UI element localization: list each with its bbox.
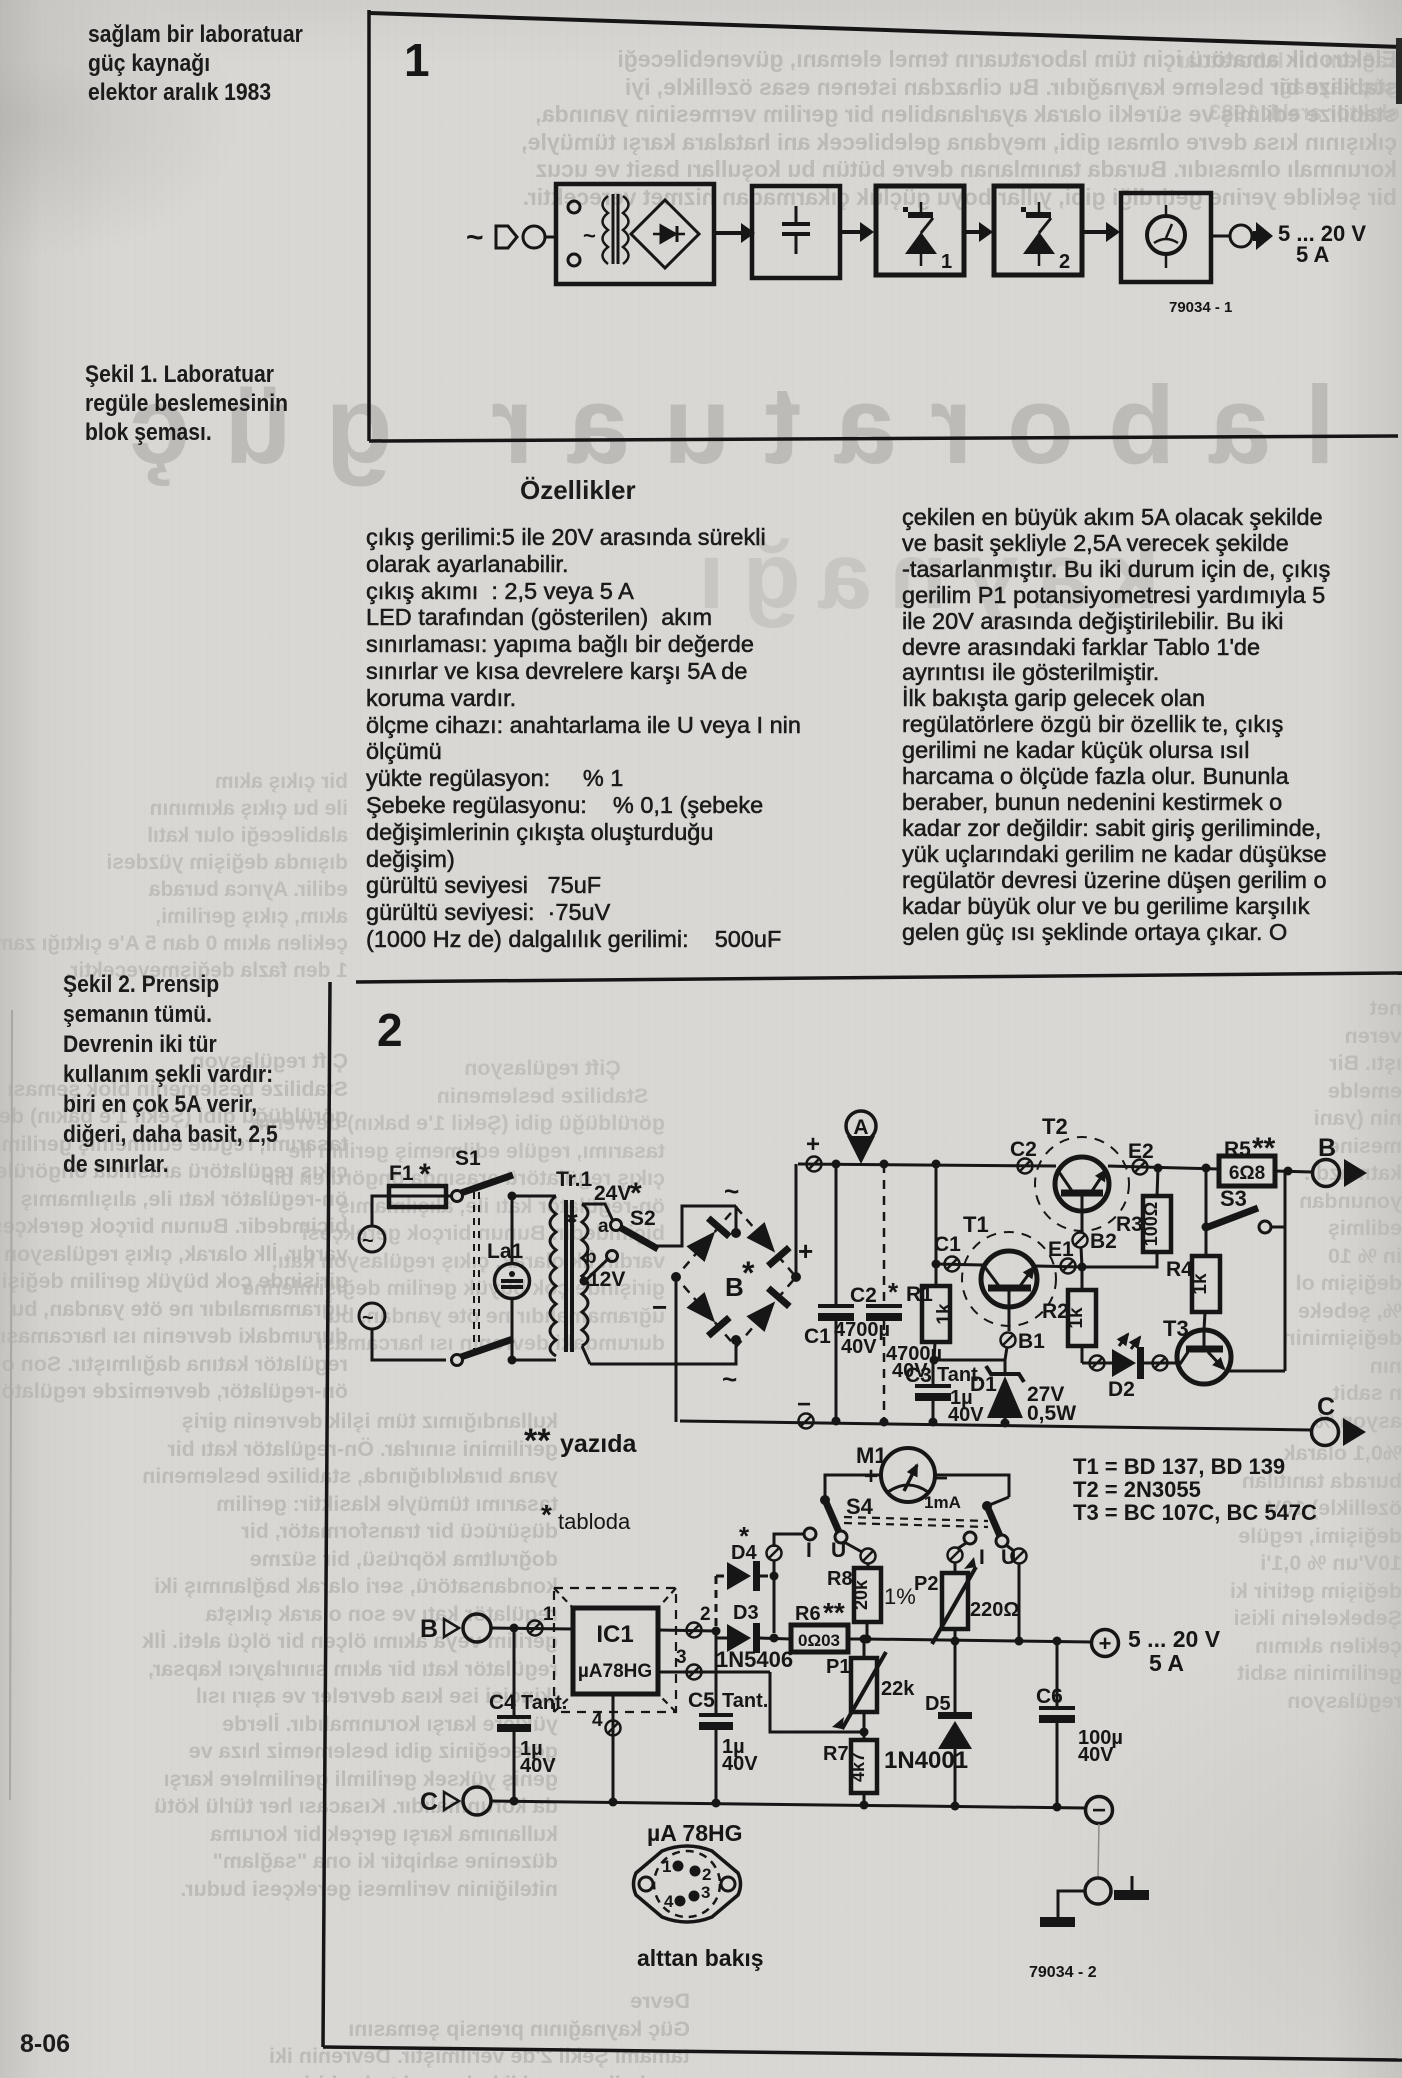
svg-text:U: U	[831, 1539, 846, 1562]
svg-text:3: 3	[676, 1647, 687, 1668]
svg-text:C3: C3	[905, 1364, 932, 1387]
svg-text:+: +	[798, 1236, 813, 1266]
svg-text:a: a	[598, 1216, 609, 1237]
svg-text:R1: R1	[906, 1283, 933, 1306]
svg-text:2: 2	[377, 1004, 403, 1056]
svg-text:1k: 1k	[934, 1303, 955, 1325]
svg-text:µA 78HG: µA 78HG	[647, 1820, 742, 1846]
svg-text:1: 1	[404, 34, 430, 86]
svg-text:2: 2	[1059, 251, 1070, 273]
svg-text:R2: R2	[1042, 1300, 1069, 1323]
svg-text:~: ~	[362, 1230, 374, 1252]
svg-text:~: ~	[583, 223, 596, 248]
svg-text:F1: F1	[389, 1162, 414, 1185]
svg-text:1N5406: 1N5406	[716, 1647, 793, 1672]
svg-text:b: b	[585, 1247, 597, 1268]
svg-text:S1: S1	[455, 1147, 481, 1170]
svg-text:**: **	[1252, 1132, 1276, 1165]
svg-text:C5: C5	[688, 1689, 715, 1712]
svg-text:24V: 24V	[594, 1182, 631, 1205]
svg-text:µA78HG: µA78HG	[578, 1661, 652, 1682]
svg-text:T2 = 2N3055: T2 = 2N3055	[1073, 1477, 1201, 1502]
svg-text:1: 1	[543, 1604, 554, 1625]
svg-text:T3 = BC 107C, BC 547C: T3 = BC 107C, BC 547C	[1073, 1500, 1317, 1525]
svg-text:E1: E1	[1048, 1238, 1074, 1261]
svg-text:P2: P2	[914, 1573, 938, 1595]
svg-text:~: ~	[724, 1176, 739, 1206]
svg-text:alttan bakış: alttan bakış	[637, 1945, 764, 1971]
svg-text:U: U	[1001, 1546, 1016, 1569]
svg-text:~: ~	[466, 221, 484, 254]
svg-text:La1: La1	[487, 1240, 524, 1263]
svg-text:100Ω: 100Ω	[1141, 1202, 1161, 1246]
svg-text:C6: C6	[1036, 1685, 1063, 1708]
svg-text:T1 = BD 137, BD 139: T1 = BD 137, BD 139	[1073, 1454, 1285, 1479]
svg-text:yazıda: yazıda	[560, 1430, 638, 1458]
svg-text:tabloda: tabloda	[558, 1509, 631, 1534]
svg-text:4: 4	[664, 1892, 674, 1911]
svg-text:1%: 1%	[884, 1584, 916, 1609]
svg-text:T3: T3	[1163, 1316, 1189, 1341]
svg-text:B: B	[1318, 1134, 1336, 1162]
svg-text:0,5W: 0,5W	[1027, 1402, 1076, 1425]
svg-text:3: 3	[701, 1883, 710, 1902]
svg-text:R7: R7	[823, 1743, 849, 1765]
svg-text:D5: D5	[925, 1693, 951, 1715]
svg-text:B2: B2	[1090, 1230, 1117, 1253]
svg-text:Tr.1: Tr.1	[556, 1168, 593, 1191]
svg-text:1: 1	[941, 251, 952, 273]
svg-text:D1: D1	[970, 1373, 997, 1396]
svg-text:40V: 40V	[722, 1753, 758, 1775]
svg-text:R8: R8	[827, 1568, 853, 1590]
svg-text:C2: C2	[850, 1284, 877, 1307]
svg-text:I: I	[806, 1539, 812, 1562]
svg-text:~: ~	[722, 1364, 737, 1394]
svg-text:1mA: 1mA	[924, 1493, 961, 1512]
svg-text:+: +	[1099, 1631, 1112, 1656]
svg-text:40V: 40V	[948, 1404, 984, 1426]
svg-text:*: *	[888, 1277, 899, 1307]
svg-text:4: 4	[592, 1710, 603, 1731]
svg-text:IC1: IC1	[596, 1621, 633, 1648]
svg-text:P1: P1	[826, 1656, 850, 1678]
svg-text:D4: D4	[731, 1542, 757, 1564]
svg-text:5 ... 20 V: 5 ... 20 V	[1128, 1626, 1221, 1652]
svg-text:5 A: 5 A	[1149, 1650, 1184, 1676]
svg-text:~: ~	[362, 1307, 374, 1329]
svg-text:R6: R6	[795, 1603, 821, 1625]
svg-text:C1: C1	[804, 1325, 831, 1348]
svg-text:1k: 1k	[1066, 1307, 1087, 1329]
svg-text:Tant.: Tant.	[521, 1692, 567, 1714]
svg-text:6Ω8: 6Ω8	[1229, 1163, 1265, 1184]
svg-text:*: *	[742, 1255, 755, 1291]
svg-text:220Ω: 220Ω	[970, 1599, 1019, 1621]
svg-text:1k: 1k	[1190, 1273, 1211, 1295]
svg-text:D2: D2	[1108, 1378, 1135, 1401]
svg-text:40V: 40V	[1078, 1744, 1114, 1766]
svg-text:R4: R4	[1166, 1258, 1193, 1281]
svg-text:*: *	[541, 1499, 552, 1530]
svg-text:−: −	[1092, 1797, 1106, 1824]
svg-text:22k: 22k	[881, 1678, 915, 1700]
svg-text:R3: R3	[1116, 1213, 1143, 1236]
svg-text:S2: S2	[630, 1207, 656, 1230]
svg-text:40V: 40V	[841, 1336, 877, 1358]
svg-text:1: 1	[662, 1857, 671, 1876]
svg-text:2: 2	[702, 1865, 711, 1884]
svg-text:**: **	[524, 1422, 551, 1460]
svg-text:B: B	[725, 1272, 744, 1302]
svg-text:D3: D3	[733, 1602, 759, 1624]
svg-text:I: I	[979, 1546, 985, 1569]
svg-text:2: 2	[700, 1604, 711, 1625]
svg-text:Tant.: Tant.	[722, 1690, 768, 1712]
svg-text:B: B	[420, 1615, 438, 1643]
svg-text:12V: 12V	[588, 1268, 625, 1291]
svg-text:20k: 20k	[851, 1579, 871, 1610]
svg-text:79034 - 1: 79034 - 1	[1169, 299, 1232, 316]
svg-text:C: C	[1317, 1393, 1335, 1421]
svg-text:40V: 40V	[520, 1755, 556, 1777]
svg-text:−: −	[934, 1465, 948, 1492]
svg-text:C: C	[420, 1788, 438, 1816]
svg-text:C1: C1	[934, 1233, 961, 1256]
svg-text:*: *	[630, 1177, 642, 1210]
svg-text:79034 - 2: 79034 - 2	[1029, 1964, 1097, 1981]
svg-text:+: +	[806, 1131, 820, 1158]
svg-text:A: A	[853, 1116, 868, 1139]
svg-text:−: −	[797, 1391, 811, 1418]
svg-text:S4: S4	[846, 1494, 874, 1519]
svg-text:5 A: 5 A	[1296, 242, 1330, 267]
svg-text:B1: B1	[1018, 1330, 1045, 1353]
svg-text:S3: S3	[1220, 1186, 1247, 1211]
svg-text:T2: T2	[1042, 1114, 1068, 1139]
svg-text:−: −	[652, 1292, 667, 1322]
svg-text:T1: T1	[963, 1212, 989, 1237]
svg-text:4k7: 4k7	[848, 1752, 868, 1782]
svg-text:C4: C4	[489, 1691, 516, 1714]
svg-text:0Ω03: 0Ω03	[798, 1631, 840, 1650]
